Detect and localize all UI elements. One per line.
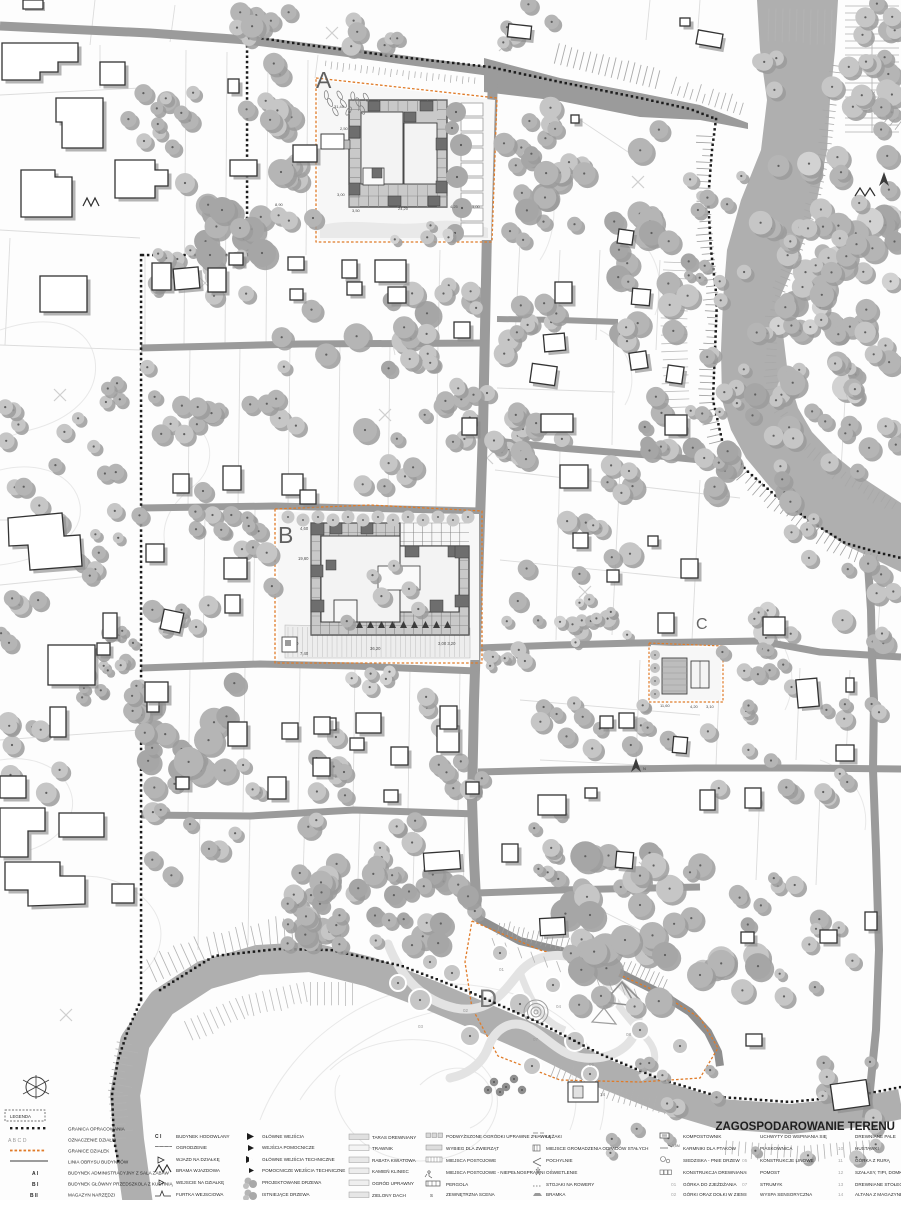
svg-text:S: S: [430, 1193, 433, 1198]
svg-text:SIEDZISKA - PNIE DRZEW: SIEDZISKA - PNIE DRZEW: [683, 1158, 740, 1163]
svg-text:06: 06: [742, 1170, 748, 1176]
svg-text:MIEJSCA POSTOJOWE: MIEJSCA POSTOJOWE: [446, 1158, 496, 1163]
svg-text:WEJŚCIA POMOCNICZE: WEJŚCIA POMOCNICZE: [262, 1143, 315, 1150]
svg-text:BRAMA WJAZDOWA: BRAMA WJAZDOWA: [176, 1168, 221, 1173]
svg-text:KOMPOSTOWNIK: KOMPOSTOWNIK: [683, 1134, 722, 1139]
svg-text:POCHYLNIE: POCHYLNIE: [546, 1158, 573, 1163]
svg-text:A I: A I: [32, 1171, 39, 1177]
svg-text:OZNACZENIE DZIAŁKI: OZNACZENIE DZIAŁKI: [68, 1138, 116, 1143]
svg-text:3,00: 3,00: [337, 192, 346, 197]
svg-text:08: 08: [626, 1032, 632, 1037]
svg-text:PERGOLA: PERGOLA: [446, 1182, 469, 1187]
svg-text:02: 02: [463, 1008, 469, 1013]
svg-text:02: 02: [671, 1192, 677, 1198]
svg-text:2,50: 2,50: [340, 126, 349, 131]
svg-text:DREWNIANE STOŁECZKI: DREWNIANE STOŁECZKI: [855, 1182, 901, 1187]
svg-text:GRANICE DZIAŁEK: GRANICE DZIAŁEK: [68, 1149, 110, 1154]
svg-text:OGRÓD UPRAWNY: OGRÓD UPRAWNY: [372, 1180, 414, 1186]
svg-text:C: C: [696, 616, 708, 633]
svg-text:ISTNIEJĄCE DRZEWA: ISTNIEJĄCE DRZEWA: [262, 1192, 310, 1197]
svg-text:POMOST: POMOST: [760, 1170, 780, 1175]
svg-text:14: 14: [600, 1092, 606, 1097]
svg-text:WEJSCIE NA DZIAŁKĘ: WEJSCIE NA DZIAŁKĘ: [176, 1180, 224, 1185]
svg-text:3,10: 3,10: [706, 704, 715, 709]
svg-text:WYSPA SENSORYCZNA: WYSPA SENSORYCZNA: [760, 1192, 813, 1197]
svg-text:D: D: [479, 985, 497, 1013]
svg-text:31,45: 31,45: [334, 104, 345, 109]
svg-text:GRANICA OPRACOWANIA: GRANICA OPRACOWANIA: [68, 1127, 126, 1132]
svg-text:11,60: 11,60: [660, 703, 670, 708]
svg-text:KONSTRUKCJE LINOWE: KONSTRUKCJE LINOWE: [760, 1158, 814, 1163]
svg-text:GŁÓWNE WEJŚCIA TECHNICZNE: GŁÓWNE WEJŚCIA TECHNICZNE: [262, 1155, 335, 1162]
svg-text:B I: B I: [32, 1182, 39, 1188]
svg-text:KARMNIKI DLA PTAKÓW: KARMNIKI DLA PTAKÓW: [683, 1145, 737, 1151]
svg-text:TARAS DREWNIANY: TARAS DREWNIANY: [372, 1135, 416, 1140]
svg-text:HUŚTAWKI: HUŚTAWKI: [855, 1144, 879, 1151]
svg-text:WJAZD NA DZIAŁKĘ: WJAZD NA DZIAŁKĘ: [176, 1157, 220, 1162]
svg-text:GŁÓWNE WEJŚCIA: GŁÓWNE WEJŚCIA: [262, 1132, 305, 1139]
svg-text:4,60: 4,60: [300, 526, 309, 531]
svg-text:BRAMKA: BRAMKA: [546, 1192, 566, 1197]
svg-text:LEGENDA: LEGENDA: [10, 1114, 31, 1119]
svg-text:BUDYNEK HODOWLANY: BUDYNEK HODOWLANY: [176, 1134, 230, 1139]
svg-text:GÓRKI ORAZ DOŁKI W ZIEMI: GÓRKI ORAZ DOŁKI W ZIEMI: [683, 1191, 746, 1197]
svg-text:ZAGOSPODAROWANIE TERENU: ZAGOSPODAROWANIE TERENU: [715, 1121, 895, 1133]
svg-text:GÓRKA Z RURĄ: GÓRKA Z RURĄ: [855, 1157, 891, 1163]
svg-text:01: 01: [499, 967, 505, 972]
svg-text:DREWNIANE PALE: DREWNIANE PALE: [855, 1134, 896, 1139]
svg-text:8,90: 8,90: [275, 202, 284, 207]
svg-text:ALTANA Z MAGAZYNEM: ALTANA Z MAGAZYNEM: [855, 1192, 901, 1197]
svg-text:3,50: 3,50: [352, 208, 361, 213]
svg-text:POMOCNICZE WEJŚCIA TECHNICZNE: POMOCNICZE WEJŚCIA TECHNICZNE: [262, 1166, 345, 1173]
svg-text:4,25: 4,25: [450, 204, 459, 209]
svg-text:07: 07: [742, 1182, 748, 1188]
svg-text:OŚWIETLENIE: OŚWIETLENIE: [546, 1168, 577, 1175]
svg-text:10: 10: [838, 1146, 844, 1152]
svg-text:PROJEKTOWANE DRZEWA: PROJEKTOWANE DRZEWA: [262, 1180, 322, 1185]
svg-text:03: 03: [418, 1024, 424, 1029]
svg-text:MIEJSCA POSTOJOWE - NIEPEŁNOSP: MIEJSCA POSTOJOWE - NIEPEŁNOSPRAWNI: [446, 1170, 545, 1175]
svg-text:STRUMYK: STRUMYK: [760, 1182, 783, 1187]
svg-text:LINIA OBRYSU BUDYNKÓW: LINIA OBRYSU BUDYNKÓW: [68, 1159, 129, 1165]
svg-text:4,20: 4,20: [690, 704, 699, 709]
svg-text:TRAWNIK: TRAWNIK: [372, 1146, 394, 1151]
svg-text:ZEWNĘTRZNA SCENA: ZEWNĘTRZNA SCENA: [446, 1192, 496, 1197]
svg-text:19,60: 19,60: [298, 556, 309, 561]
svg-text:B II: B II: [30, 1193, 38, 1199]
svg-text:14: 14: [838, 1192, 844, 1198]
svg-text:WYBIEG DLA ZWIERZĄT: WYBIEG DLA ZWIERZĄT: [446, 1146, 499, 1151]
svg-text:KONSTRUKCJA DREWNIANA: KONSTRUKCJA DREWNIANA: [683, 1170, 747, 1175]
svg-text:STOJAKI NA ROWERY: STOJAKI NA ROWERY: [546, 1182, 594, 1187]
svg-text:RABATA KWIATOWA: RABATA KWIATOWA: [372, 1158, 417, 1163]
svg-text:MAGAZYN NARZĘDZI: MAGAZYN NARZĘDZI: [68, 1193, 115, 1198]
svg-text:SZAŁASY, TIPI, DOMKI: SZAŁASY, TIPI, DOMKI: [855, 1170, 901, 1175]
svg-text:B: B: [278, 522, 293, 548]
svg-text:KAMIEŃ KLINIEC: KAMIEŃ KLINIEC: [372, 1168, 409, 1174]
svg-text:5,00: 5,00: [472, 204, 481, 209]
svg-text:PIASKOWNICA: PIASKOWNICA: [760, 1146, 793, 1151]
svg-text:01: 01: [671, 1182, 677, 1188]
svg-text:FURTKA WEJSCIOWA: FURTKA WEJSCIOWA: [176, 1192, 224, 1197]
svg-text:11: 11: [838, 1158, 843, 1164]
svg-text:07: 07: [533, 1037, 539, 1042]
svg-text:LEŻAKI: LEŻAKI: [546, 1133, 562, 1139]
svg-text:A: A: [316, 67, 332, 93]
svg-text:08: 08: [742, 1192, 748, 1198]
svg-text:A B C D: A B C D: [8, 1138, 27, 1144]
svg-text:BUDYNEK GŁÓWNY PRZEDSZKOLA Z K: BUDYNEK GŁÓWNY PRZEDSZKOLA Z KUCHNIĄ: [68, 1181, 174, 1187]
svg-text:3,00 3,20: 3,00 3,20: [438, 641, 456, 646]
svg-text:24,20: 24,20: [398, 206, 409, 211]
svg-text:MIEJSCE GROMADZENIA ODPADÓW ST: MIEJSCE GROMADZENIA ODPADÓW STAŁYCH: [546, 1145, 648, 1151]
svg-text:BUDYNEK ADMINISTRACYJNY Z SALA: BUDYNEK ADMINISTRACYJNY Z SALA ZABAW: [68, 1171, 169, 1176]
svg-text:OGRODZENIE: OGRODZENIE: [176, 1145, 207, 1150]
svg-text:04: 04: [556, 1004, 562, 1009]
svg-text:12: 12: [838, 1170, 844, 1176]
svg-text:N: N: [643, 766, 646, 771]
svg-text:05: 05: [742, 1158, 748, 1164]
svg-text:7,40: 7,40: [300, 651, 309, 656]
svg-text:UCHWYTY DO WSPINANIA SIĘ: UCHWYTY DO WSPINANIA SIĘ: [760, 1134, 827, 1139]
svg-text:C I: C I: [155, 1134, 162, 1140]
svg-text:36,20: 36,20: [370, 646, 381, 651]
svg-text:13: 13: [838, 1182, 844, 1188]
svg-text:1,5M: 1,5M: [672, 1144, 680, 1148]
svg-text:ZIELONY DACH: ZIELONY DACH: [372, 1193, 406, 1198]
svg-text:GÓRKA DO ZJEŻDŻANIA: GÓRKA DO ZJEŻDŻANIA: [683, 1181, 738, 1187]
svg-text:06: 06: [589, 1062, 595, 1067]
